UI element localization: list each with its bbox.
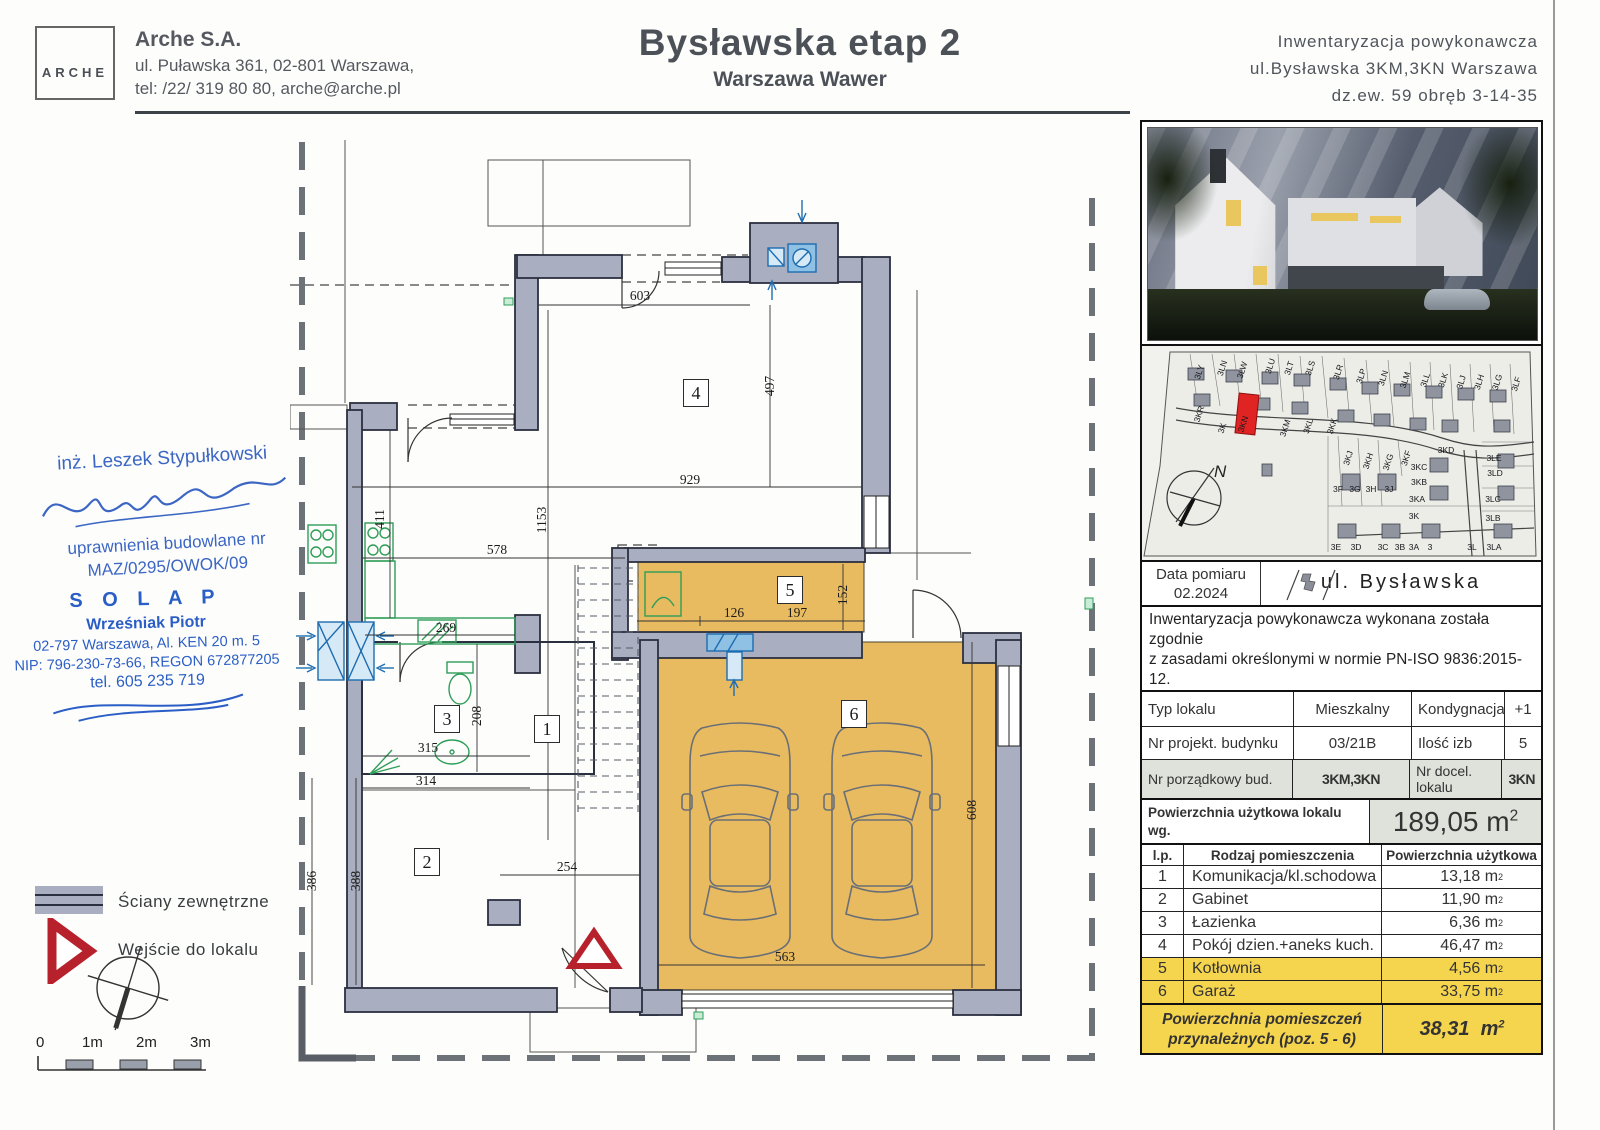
dimension-label: 563 <box>775 949 795 965</box>
room-number: 6 <box>841 700 867 728</box>
company-block: Arche S.A. ul. Puławska 361, 02-801 Wars… <box>135 28 414 102</box>
plot-label: 3J <box>1385 484 1394 494</box>
table-row: 4Pokój dzien.+aneks kuch.46,47 m2 <box>1142 934 1541 957</box>
dimension-label: 603 <box>630 288 650 304</box>
table-cell: 3 <box>1142 912 1184 934</box>
plot-label: 3B <box>1395 542 1405 552</box>
site-map: N 3LY3LN3LW3LU3LT3LS3LR3LP3LN3LM3LL3LK3L… <box>1142 346 1541 562</box>
plot-label: 3F <box>1333 484 1343 494</box>
plot-label: 3D <box>1351 542 1362 552</box>
room-number: 5 <box>777 576 803 604</box>
table-cell: Garaż <box>1184 981 1382 1003</box>
scale-tick-1m: 1m <box>82 1034 103 1051</box>
table-cell: 11,90 m2 <box>1382 889 1541 911</box>
dimension-label: 315 <box>418 740 438 756</box>
plot-label: 3H <box>1366 484 1377 494</box>
scale-tick-0: 0 <box>36 1034 44 1051</box>
street-name: ul. Bysławska <box>1261 562 1541 605</box>
toilet <box>449 674 471 704</box>
table-cell: 46,47 m2 <box>1382 935 1541 957</box>
floor-plan: 6034979291153578411269208315314254386388… <box>290 140 1102 1072</box>
table-cell: Kotłownia <box>1184 958 1382 980</box>
dimension-label: 254 <box>557 859 577 875</box>
plot-label: 3A <box>1409 542 1419 552</box>
scale-bar <box>34 1052 214 1078</box>
arche-logo: ARCHE <box>35 26 115 100</box>
dimension-label: 1153 <box>534 507 550 534</box>
building-number-row: Nr porządkowy bud. 3KM,3KN Nr docel. lok… <box>1142 760 1541 798</box>
table-row: 3Łazienka6,36 m2 <box>1142 911 1541 934</box>
table-cell: Łazienka <box>1184 912 1382 934</box>
plot-label: 3KD <box>1438 445 1455 455</box>
dimension-label: 197 <box>787 605 807 621</box>
dimension-label: 578 <box>487 542 507 558</box>
document-info: Inwentaryzacja powykonawcza ul.Bysławska… <box>1050 28 1538 110</box>
plot-label: 3 <box>1428 542 1433 552</box>
dimension-label: 388 <box>348 871 364 891</box>
plot-label: 3E <box>1331 542 1341 552</box>
north-label: N <box>1214 462 1226 482</box>
methodology-note: Inwentaryzacja powykonawcza wykonana zos… <box>1142 607 1541 692</box>
table-cell: 13,18 m2 <box>1382 866 1541 888</box>
table-cell: Gabinet <box>1184 889 1382 911</box>
project-number-row: Nr projekt. budynku 03/21B Ilość izb 5 <box>1142 727 1541 760</box>
dimension-label: 929 <box>680 472 700 488</box>
room-table-body: 1Komunikacja/kl.schodowa13,18 m22Gabinet… <box>1142 865 1541 1003</box>
table-row: 6Garaż33,75 m2 <box>1142 980 1541 1003</box>
room-number: 3 <box>434 705 460 733</box>
street-sketch <box>1269 566 1339 604</box>
table-row: 1Komunikacja/kl.schodowa13,18 m2 <box>1142 865 1541 888</box>
stamp-company: S O L A P <box>0 584 291 615</box>
engineer-signature-block: inż. Leszek Stypułkowski uprawnienia bud… <box>27 441 303 586</box>
dimension-label: 269 <box>436 620 456 636</box>
photo-car <box>1424 289 1490 310</box>
scale-tick-2m: 2m <box>136 1034 157 1051</box>
table-cell: 4,56 m2 <box>1382 958 1541 980</box>
plot-label: 3LB <box>1485 513 1500 523</box>
washbasin <box>435 740 469 764</box>
dimension-label: 152 <box>835 585 851 605</box>
dimension-label: 608 <box>964 800 980 820</box>
building-photo <box>1142 122 1541 346</box>
room-number: 2 <box>414 848 440 876</box>
survey-date: Data pomiaru 02.2024 <box>1142 562 1261 605</box>
table-cell: Komunikacja/kl.schodowa <box>1184 866 1382 888</box>
table-cell: 6,36 m2 <box>1382 912 1541 934</box>
unit-info-grid: Typ lokalu Mieszkalny Kondygnacja +1 Nr … <box>1142 692 1541 800</box>
dimension-label: 208 <box>469 706 485 726</box>
table-cell: Pokój dzien.+aneks kuch. <box>1184 935 1382 957</box>
company-address: ul. Puławska 361, 02-801 Warszawa, <box>135 56 414 76</box>
plot-label: 3LD <box>1487 468 1503 478</box>
table-cell: 4 <box>1142 935 1184 957</box>
table-cell: 5 <box>1142 958 1184 980</box>
stamp-signature-squiggle <box>38 688 259 728</box>
room-table: l.p. Rodzaj pomieszczenia Powierzchnia u… <box>1142 845 1541 1053</box>
room-number: 4 <box>683 379 709 407</box>
exterior-wall-legend-label: Ściany zewnętrzne <box>118 892 269 912</box>
dimension-label: 497 <box>762 376 778 396</box>
accessory-rooms-fill <box>638 562 996 990</box>
total-area-value: 189,05 m2 <box>1370 800 1541 843</box>
plot-label: 3KB <box>1411 477 1427 487</box>
dimension-label: 386 <box>304 871 320 891</box>
plot-label: 3LC <box>1485 494 1501 504</box>
table-row: 2Gabinet11,90 m2 <box>1142 888 1541 911</box>
plot-label: 3L <box>1467 542 1476 552</box>
plot-label: 3KA <box>1409 494 1425 504</box>
entrance-marker <box>571 932 617 966</box>
plot-label: 3LA <box>1486 542 1501 552</box>
scanned-floor-plan-document: ARCHE Arche S.A. ul. Puławska 361, 02-80… <box>0 0 1600 1130</box>
company-name: Arche S.A. <box>135 28 414 52</box>
handwritten-signature <box>33 463 296 535</box>
dimension-label: 314 <box>416 773 436 789</box>
table-cell: 1 <box>1142 866 1184 888</box>
plot-label: 3G <box>1349 484 1360 494</box>
table-row: 5Kotłownia4,56 m2 <box>1142 957 1541 980</box>
company-contact: tel: /22/ 319 80 80, arche@arche.pl <box>135 79 414 99</box>
doc-type: Inwentaryzacja powykonawcza <box>1050 28 1538 55</box>
total-area-row: Powierzchnia użytkowa lokalu wg. PN-ISO … <box>1142 800 1541 845</box>
room-number: 1 <box>534 715 560 743</box>
info-panel: N 3LY3LN3LW3LU3LT3LS3LR3LP3LN3LM3LL3LK3L… <box>1140 120 1543 1055</box>
plot-label: 3C <box>1378 542 1389 552</box>
exterior-wall-legend-symbol <box>35 886 103 914</box>
table-cell: 33,75 m2 <box>1382 981 1541 1003</box>
surveyor-stamp: S O L A P Wrześniak Piotr 02-797 Warszaw… <box>0 584 294 734</box>
arche-logo-text: ARCHE <box>42 65 108 80</box>
room-table-header: l.p. Rodzaj pomieszczenia Powierzchnia u… <box>1142 845 1541 865</box>
scan-edge-line <box>1553 0 1555 1130</box>
dimension-label: 411 <box>372 509 388 529</box>
accessory-area-summary: Powierzchnia pomieszczeń przynależnych (… <box>1142 1003 1541 1053</box>
doc-address: ul.Bysławska 3KM,3KN Warszawa <box>1050 55 1538 82</box>
plot-label: 3KC <box>1411 462 1428 472</box>
table-cell: 2 <box>1142 889 1184 911</box>
dimension-label: 126 <box>724 605 744 621</box>
scale-tick-3m: 3m <box>190 1034 211 1051</box>
floor-plan-drawing <box>290 140 1102 1072</box>
compass-icon <box>82 942 174 1034</box>
plot-label: 3LE <box>1486 453 1501 463</box>
table-cell: 6 <box>1142 981 1184 1003</box>
unit-type-row: Typ lokalu Mieszkalny Kondygnacja +1 <box>1142 692 1541 727</box>
plot-label: 3K <box>1409 511 1419 521</box>
accessory-area-value: 38,31 m2 <box>1383 1005 1541 1053</box>
total-area-label: Powierzchnia użytkowa lokalu wg. PN-ISO … <box>1142 800 1370 843</box>
header-divider <box>135 111 1130 114</box>
doc-parcel: dz.ew. 59 obręb 3-14-35 <box>1050 82 1538 109</box>
survey-date-row: Data pomiaru 02.2024 ul. Bysławska <box>1142 562 1541 607</box>
